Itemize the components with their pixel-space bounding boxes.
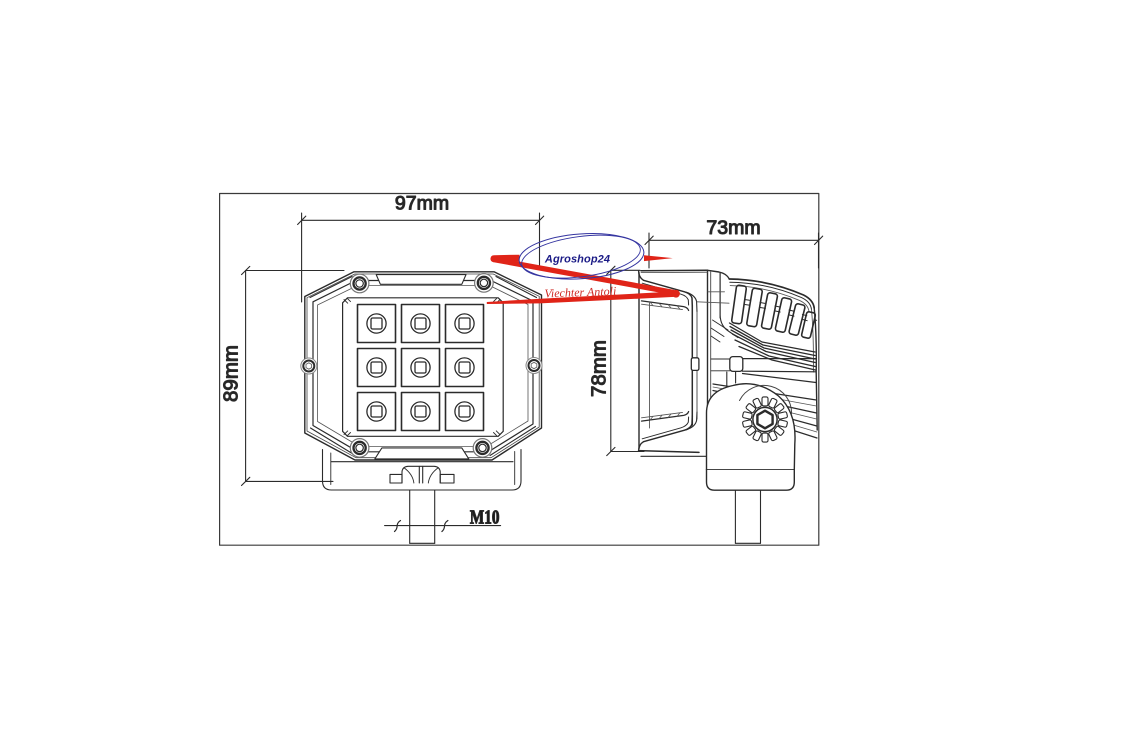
svg-text:Viechter Antoli: Viechter Antoli [544,284,616,300]
svg-text:M10: M10 [470,506,500,528]
svg-text:73mm: 73mm [706,217,760,239]
svg-text:Agroshop24: Agroshop24 [544,254,610,266]
svg-text:89mm: 89mm [219,345,242,402]
svg-text:78mm: 78mm [588,340,611,397]
svg-text:97mm: 97mm [395,193,449,215]
